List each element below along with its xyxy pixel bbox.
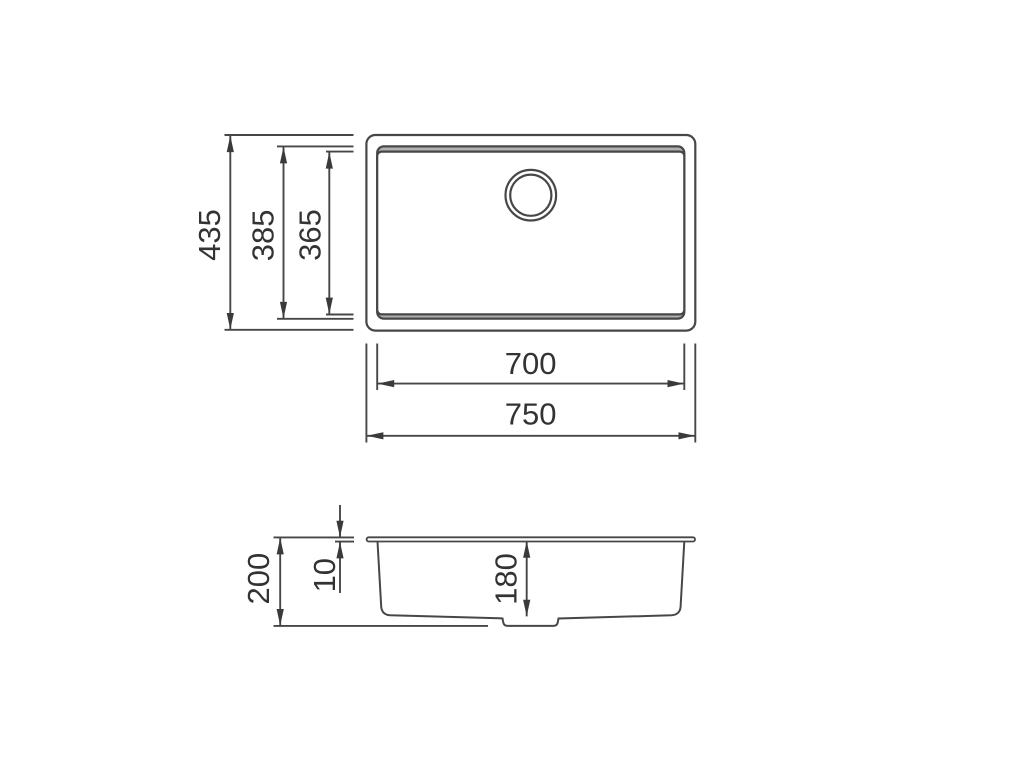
svg-text:700: 700 [505,346,557,381]
svg-text:180: 180 [489,553,524,605]
svg-text:435: 435 [192,209,227,261]
svg-text:750: 750 [505,396,557,431]
svg-text:10: 10 [307,558,342,592]
svg-text:385: 385 [246,210,281,262]
svg-text:365: 365 [293,209,328,261]
svg-text:200: 200 [241,553,276,605]
